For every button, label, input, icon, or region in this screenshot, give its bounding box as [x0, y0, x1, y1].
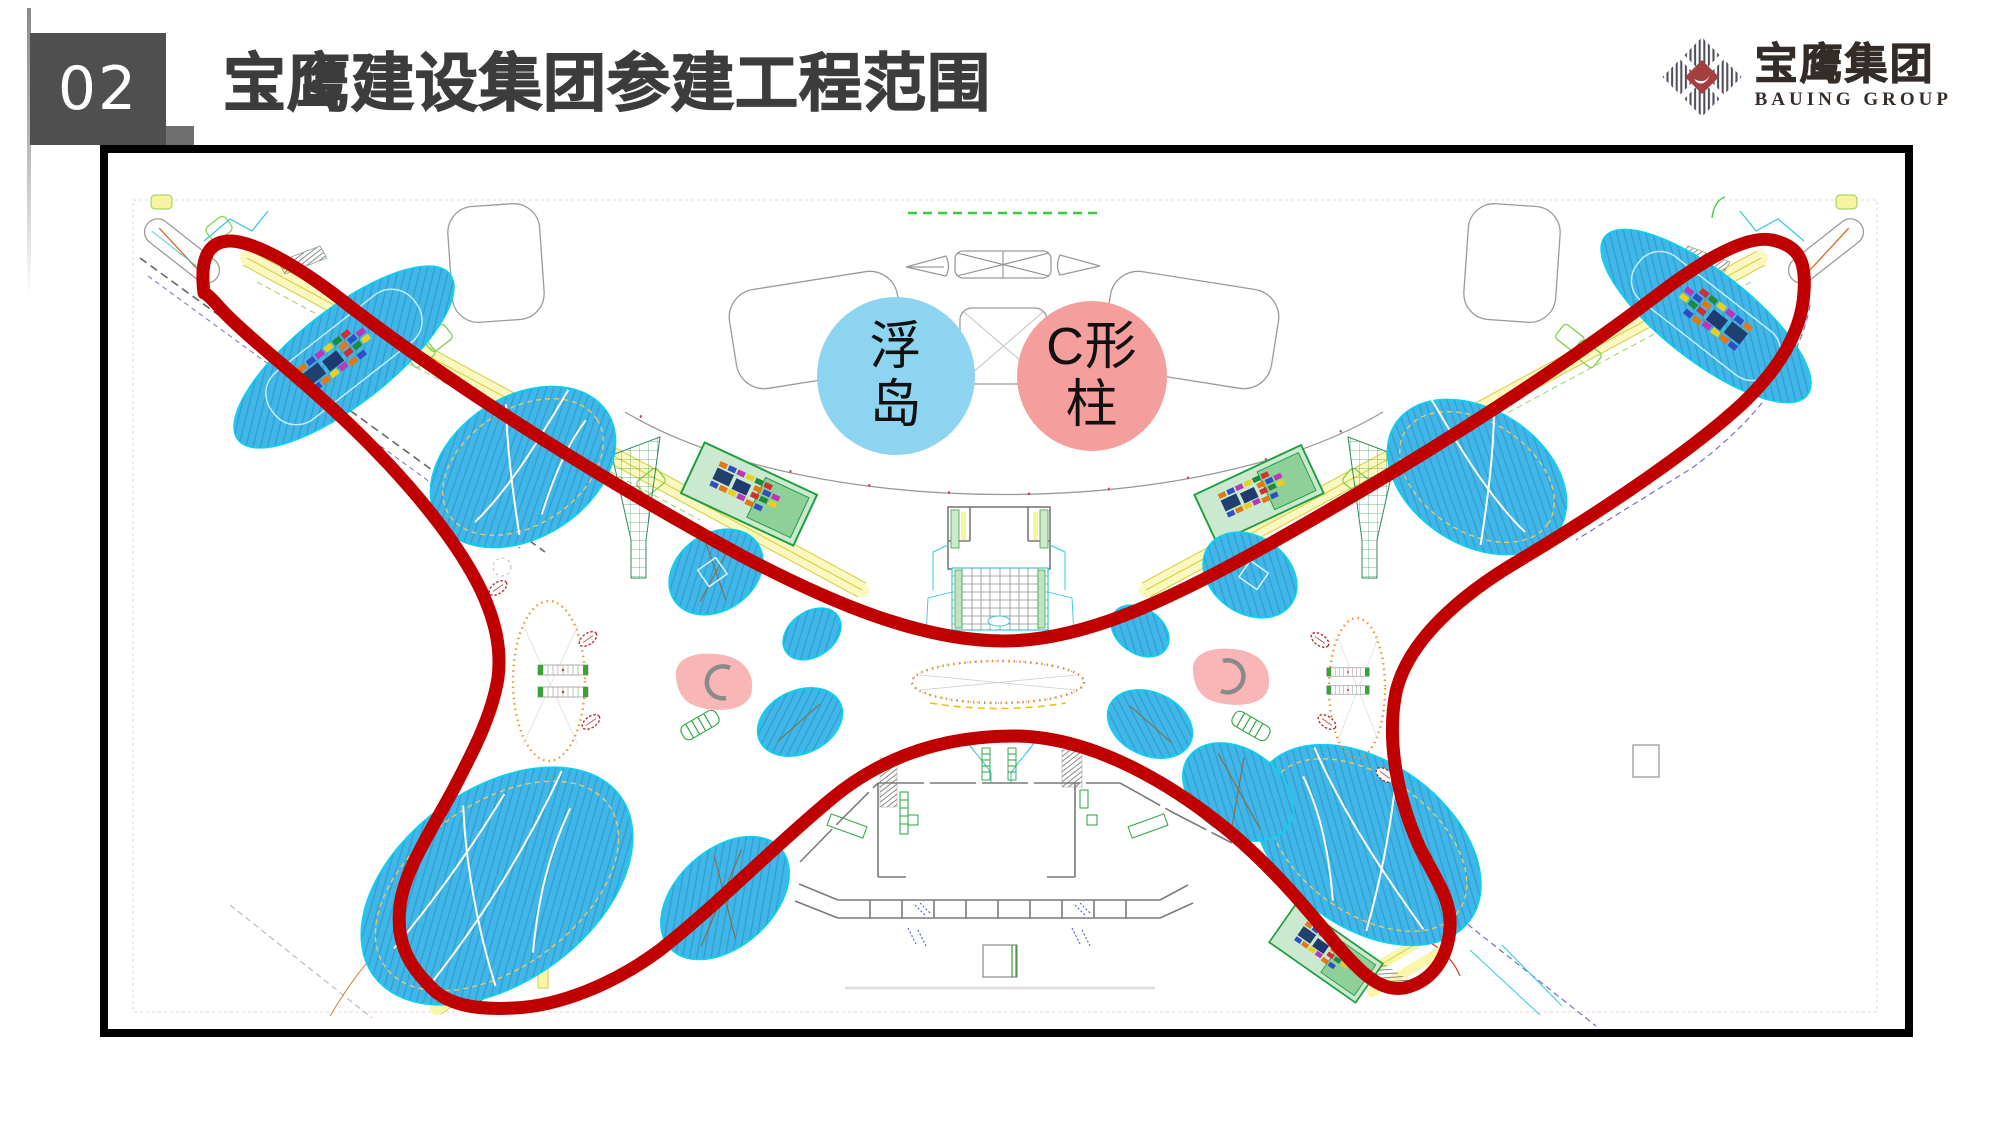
legend-c-column: C形 柱 — [1017, 301, 1167, 451]
legend-floating-island-line1: 浮 — [869, 318, 922, 376]
c-column-marker — [676, 654, 752, 710]
logo-name-en: BAUING GROUP — [1755, 89, 1952, 111]
terminal-floor-plan — [100, 145, 1913, 1037]
slide-number: 02 — [58, 54, 138, 124]
logo-diamond-icon — [1659, 34, 1745, 120]
platform-bean-right — [1327, 618, 1385, 758]
floating-island — [1216, 704, 1518, 986]
logo-name-cn: 宝鹰集团 — [1755, 43, 1935, 88]
floating-island — [401, 354, 645, 580]
company-logo: 宝鹰集团 BAUING GROUP — [1659, 34, 1952, 120]
legend-floating-island: 浮 岛 — [817, 297, 975, 455]
floating-island — [318, 719, 677, 1037]
legend-c-column-line2: 柱 — [1065, 376, 1118, 434]
platform-bean-left — [513, 601, 588, 761]
page-title: 宝鹰建设集团参建工程范围 — [223, 38, 991, 118]
floating-island — [747, 675, 853, 768]
legend-c-column-line1: C形 — [1046, 318, 1138, 376]
central-courtyard — [912, 661, 1084, 709]
top-center-building — [926, 507, 1074, 636]
c-column-marker — [1193, 649, 1269, 705]
floating-island — [774, 598, 850, 670]
slide-number-badge: 02 — [30, 33, 166, 145]
legend-floating-island-line2: 岛 — [869, 376, 922, 434]
